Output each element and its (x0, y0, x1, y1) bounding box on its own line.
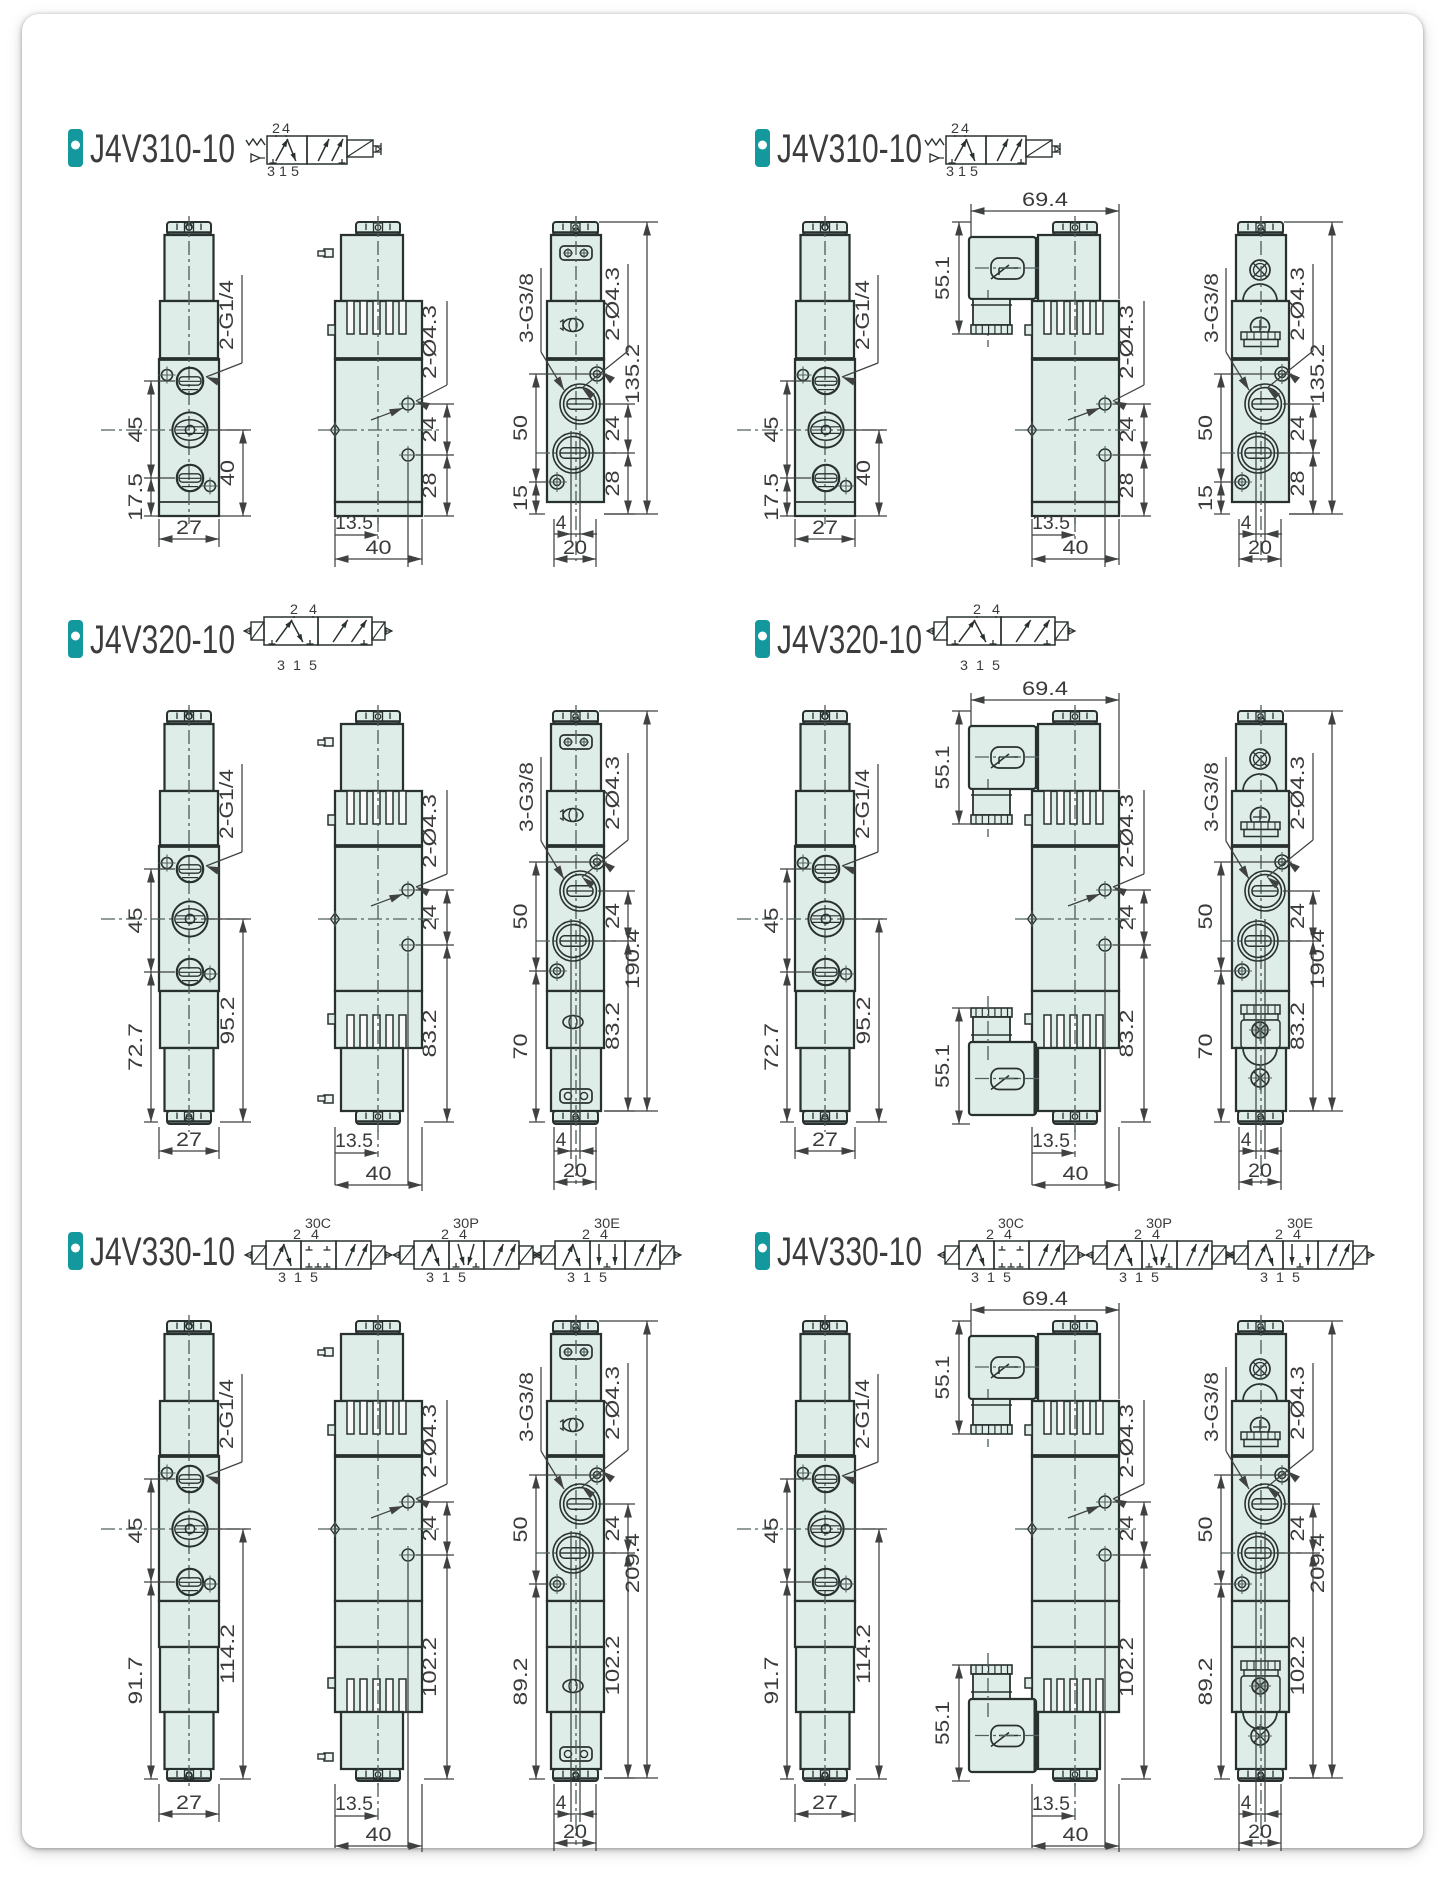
svg-text:24: 24 (603, 1515, 624, 1542)
svg-text:28: 28 (1288, 471, 1309, 497)
svg-text:55.1: 55.1 (933, 1044, 954, 1088)
svg-text:4: 4 (459, 1227, 468, 1242)
svg-text:20: 20 (563, 1822, 587, 1843)
svg-text:2: 2 (290, 602, 298, 617)
svg-text:3: 3 (267, 164, 275, 179)
svg-text:5: 5 (309, 658, 317, 673)
svg-text:13.5: 13.5 (1032, 513, 1070, 534)
svg-text:2-Ø4.3: 2-Ø4.3 (1288, 267, 1309, 341)
svg-text:3: 3 (960, 658, 968, 673)
svg-text:2: 2 (1275, 1227, 1283, 1242)
svg-text:2: 2 (973, 602, 981, 617)
svg-text:28: 28 (603, 471, 624, 497)
svg-text:5: 5 (458, 1270, 466, 1285)
svg-text:27: 27 (812, 1130, 838, 1151)
svg-text:1: 1 (958, 164, 966, 179)
svg-text:102.2: 102.2 (1288, 1636, 1309, 1696)
svg-text:70: 70 (1196, 1034, 1217, 1060)
svg-text:190.4: 190.4 (1308, 928, 1329, 989)
svg-text:4: 4 (1004, 1227, 1013, 1242)
svg-text:40: 40 (854, 460, 875, 486)
svg-text:5: 5 (599, 1270, 607, 1285)
svg-text:4: 4 (556, 513, 567, 534)
svg-text:1: 1 (583, 1270, 591, 1285)
svg-text:2-G1/4: 2-G1/4 (217, 1378, 238, 1449)
svg-text:4: 4 (600, 1227, 609, 1242)
svg-text:3: 3 (971, 1270, 979, 1285)
svg-text:24: 24 (1117, 416, 1138, 443)
svg-text:3: 3 (278, 1270, 286, 1285)
svg-text:13.5: 13.5 (335, 513, 373, 534)
svg-text:15: 15 (1196, 485, 1217, 511)
svg-text:1: 1 (1276, 1270, 1284, 1285)
svg-text:13.5: 13.5 (335, 1131, 373, 1152)
svg-text:2-G1/4: 2-G1/4 (217, 279, 238, 350)
svg-text:2-Ø4.3: 2-Ø4.3 (603, 756, 624, 830)
svg-text:3: 3 (567, 1270, 575, 1285)
svg-text:3: 3 (1119, 1270, 1127, 1285)
svg-text:3: 3 (426, 1270, 434, 1285)
svg-text:50: 50 (511, 904, 532, 930)
svg-text:40: 40 (366, 1164, 392, 1185)
svg-text:24: 24 (603, 415, 624, 442)
svg-text:1: 1 (294, 1270, 302, 1285)
svg-text:24: 24 (420, 416, 441, 443)
svg-text:3-G3/8: 3-G3/8 (517, 762, 538, 832)
svg-text:27: 27 (176, 1793, 202, 1814)
svg-text:102.2: 102.2 (603, 1636, 624, 1696)
svg-text:2-Ø4.3: 2-Ø4.3 (603, 1366, 624, 1440)
svg-text:28: 28 (1117, 473, 1138, 499)
svg-text:4: 4 (1152, 1227, 1161, 1242)
svg-text:2: 2 (951, 121, 959, 136)
svg-text:114.2: 114.2 (854, 1624, 875, 1684)
svg-text:55.1: 55.1 (933, 1356, 954, 1400)
svg-text:5: 5 (1151, 1270, 1159, 1285)
svg-text:102.2: 102.2 (420, 1637, 441, 1697)
svg-text:20: 20 (563, 538, 587, 559)
svg-text:2-G1/4: 2-G1/4 (853, 1378, 874, 1449)
svg-text:2-Ø4.3: 2-Ø4.3 (1288, 1366, 1309, 1440)
svg-text:95.2: 95.2 (218, 997, 239, 1045)
svg-text:4: 4 (309, 602, 318, 617)
svg-text:5: 5 (291, 164, 299, 179)
svg-text:4: 4 (1293, 1227, 1302, 1242)
svg-text:4: 4 (1241, 513, 1252, 534)
svg-text:13.5: 13.5 (335, 1794, 373, 1815)
svg-text:2-Ø4.3: 2-Ø4.3 (603, 267, 624, 341)
svg-text:4: 4 (961, 121, 970, 136)
svg-text:55.1: 55.1 (933, 746, 954, 790)
svg-text:27: 27 (812, 1793, 838, 1814)
svg-text:69.4: 69.4 (1022, 1289, 1069, 1310)
svg-text:27: 27 (812, 518, 838, 539)
svg-text:1: 1 (976, 658, 984, 673)
svg-text:24: 24 (1288, 415, 1309, 442)
svg-text:13.5: 13.5 (1032, 1794, 1070, 1815)
svg-text:17.5: 17.5 (126, 473, 147, 521)
svg-text:45: 45 (762, 417, 783, 443)
svg-text:209.4: 209.4 (1308, 1533, 1329, 1594)
svg-text:45: 45 (126, 417, 147, 443)
svg-text:2: 2 (441, 1227, 449, 1242)
svg-text:1: 1 (1135, 1270, 1143, 1285)
svg-text:20: 20 (563, 1161, 587, 1182)
svg-text:83.2: 83.2 (603, 1002, 624, 1050)
svg-text:70: 70 (511, 1034, 532, 1060)
svg-text:4: 4 (282, 121, 291, 136)
svg-text:4: 4 (311, 1227, 320, 1242)
svg-text:24: 24 (1117, 1515, 1138, 1542)
svg-text:24: 24 (603, 902, 624, 929)
svg-text:24: 24 (420, 904, 441, 931)
svg-text:2-G1/4: 2-G1/4 (853, 279, 874, 350)
svg-text:114.2: 114.2 (218, 1624, 239, 1684)
svg-text:5: 5 (970, 164, 978, 179)
svg-text:J4V320-10: J4V320-10 (777, 618, 922, 662)
svg-text:83.2: 83.2 (1288, 1002, 1309, 1050)
svg-text:69.4: 69.4 (1022, 190, 1069, 211)
svg-text:3-G3/8: 3-G3/8 (517, 1372, 538, 1442)
svg-text:1: 1 (987, 1270, 995, 1285)
svg-text:4: 4 (1241, 1130, 1252, 1151)
svg-text:2: 2 (1134, 1227, 1142, 1242)
svg-text:15: 15 (511, 485, 532, 511)
svg-text:24: 24 (1117, 904, 1138, 931)
svg-text:5: 5 (310, 1270, 318, 1285)
svg-text:4: 4 (1241, 1793, 1252, 1814)
svg-text:2: 2 (986, 1227, 994, 1242)
svg-text:2-Ø4.3: 2-Ø4.3 (420, 1404, 441, 1478)
svg-text:24: 24 (1288, 902, 1309, 929)
svg-text:1: 1 (279, 164, 287, 179)
svg-text:3: 3 (946, 164, 954, 179)
svg-text:J4V310-10: J4V310-10 (777, 127, 922, 171)
svg-text:45: 45 (762, 908, 783, 934)
svg-text:20: 20 (1248, 538, 1272, 559)
svg-text:24: 24 (420, 1515, 441, 1542)
svg-text:45: 45 (762, 1518, 783, 1544)
svg-text:2: 2 (582, 1227, 590, 1242)
svg-text:1: 1 (442, 1270, 450, 1285)
svg-text:17.5: 17.5 (762, 473, 783, 521)
svg-text:27: 27 (176, 1130, 202, 1151)
svg-text:2-Ø4.3: 2-Ø4.3 (1117, 794, 1138, 868)
svg-text:72.7: 72.7 (762, 1023, 783, 1071)
svg-text:50: 50 (1196, 415, 1217, 441)
svg-text:2-Ø4.3: 2-Ø4.3 (420, 305, 441, 379)
svg-text:45: 45 (126, 1518, 147, 1544)
svg-text:55.1: 55.1 (933, 1701, 954, 1745)
svg-text:J4V330-10: J4V330-10 (90, 1230, 235, 1274)
svg-text:20: 20 (1248, 1161, 1272, 1182)
svg-text:95.2: 95.2 (854, 997, 875, 1045)
svg-text:2: 2 (272, 121, 280, 136)
svg-text:3: 3 (277, 658, 285, 673)
svg-text:40: 40 (1063, 538, 1089, 559)
svg-text:89.2: 89.2 (511, 1658, 532, 1706)
svg-text:4: 4 (556, 1793, 567, 1814)
svg-text:50: 50 (1196, 1517, 1217, 1543)
svg-text:50: 50 (1196, 904, 1217, 930)
svg-text:2-Ø4.3: 2-Ø4.3 (1288, 756, 1309, 830)
svg-text:83.2: 83.2 (420, 1010, 441, 1058)
svg-text:J4V310-10: J4V310-10 (90, 127, 235, 171)
svg-text:89.2: 89.2 (1196, 1658, 1217, 1706)
svg-text:55.1: 55.1 (933, 256, 954, 300)
svg-text:3: 3 (1260, 1270, 1268, 1285)
svg-text:4: 4 (992, 602, 1001, 617)
svg-text:3-G3/8: 3-G3/8 (1202, 273, 1223, 343)
svg-text:J4V330-10: J4V330-10 (777, 1230, 922, 1274)
svg-text:190.4: 190.4 (623, 928, 644, 989)
svg-text:209.4: 209.4 (623, 1533, 644, 1594)
svg-text:2-G1/4: 2-G1/4 (217, 768, 238, 839)
svg-text:3-G3/8: 3-G3/8 (1202, 762, 1223, 832)
svg-text:40: 40 (218, 460, 239, 486)
svg-text:83.2: 83.2 (1117, 1010, 1138, 1058)
svg-text:72.7: 72.7 (126, 1023, 147, 1071)
svg-text:2-G1/4: 2-G1/4 (853, 768, 874, 839)
svg-text:5: 5 (992, 658, 1000, 673)
svg-text:24: 24 (1288, 1515, 1309, 1542)
svg-text:28: 28 (420, 473, 441, 499)
svg-text:2-Ø4.3: 2-Ø4.3 (1117, 1404, 1138, 1478)
svg-text:2-Ø4.3: 2-Ø4.3 (1117, 305, 1138, 379)
svg-text:45: 45 (126, 908, 147, 934)
svg-text:40: 40 (1063, 1164, 1089, 1185)
svg-text:102.2: 102.2 (1117, 1637, 1138, 1697)
svg-text:13.5: 13.5 (1032, 1131, 1070, 1152)
svg-text:20: 20 (1248, 1822, 1272, 1843)
svg-text:40: 40 (366, 538, 392, 559)
svg-text:5: 5 (1003, 1270, 1011, 1285)
svg-text:91.7: 91.7 (126, 1657, 147, 1705)
svg-text:50: 50 (511, 415, 532, 441)
svg-text:40: 40 (366, 1825, 392, 1846)
svg-text:91.7: 91.7 (762, 1657, 783, 1705)
svg-text:69.4: 69.4 (1022, 679, 1069, 700)
svg-text:40: 40 (1063, 1825, 1089, 1846)
svg-text:50: 50 (511, 1517, 532, 1543)
svg-text:2: 2 (293, 1227, 301, 1242)
svg-text:1: 1 (293, 658, 301, 673)
svg-text:J4V320-10: J4V320-10 (90, 618, 235, 662)
svg-text:27: 27 (176, 518, 202, 539)
svg-text:3-G3/8: 3-G3/8 (1202, 1372, 1223, 1442)
svg-text:5: 5 (1292, 1270, 1300, 1285)
svg-text:2-Ø4.3: 2-Ø4.3 (420, 794, 441, 868)
svg-text:3-G3/8: 3-G3/8 (517, 273, 538, 343)
svg-text:4: 4 (556, 1130, 567, 1151)
